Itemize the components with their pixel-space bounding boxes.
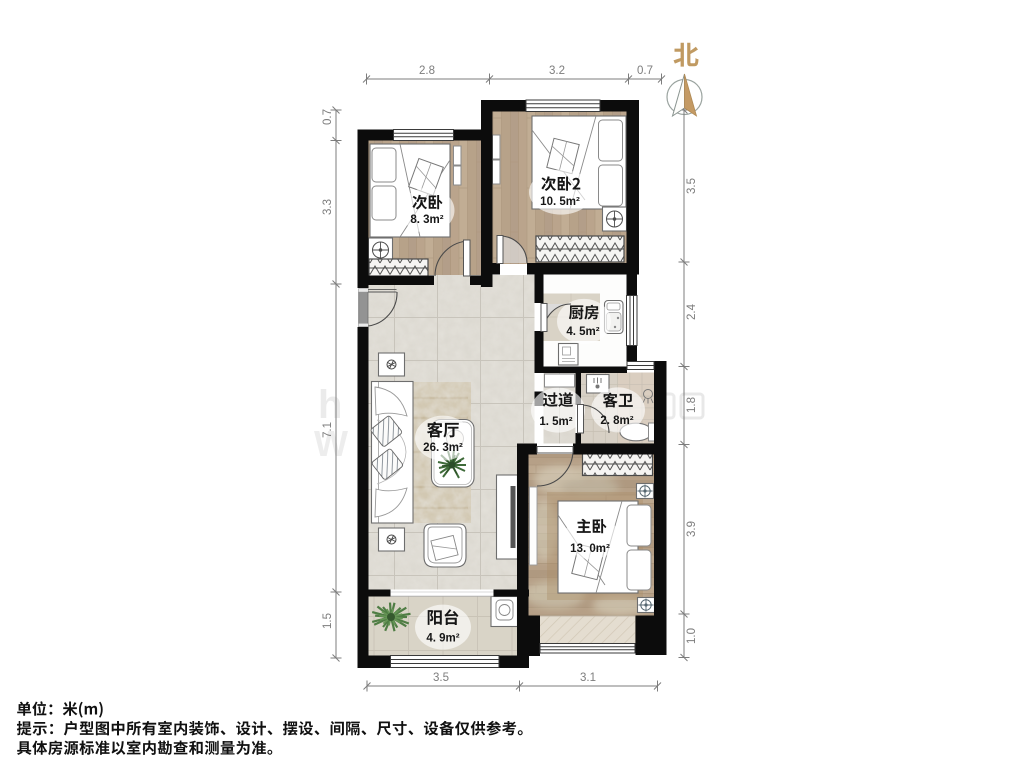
svg-text:3.3: 3.3 [322, 199, 334, 215]
svg-text:1.5: 1.5 [322, 613, 334, 629]
svg-text:2.8: 2.8 [419, 65, 435, 77]
svg-text:4. 9m²: 4. 9m² [426, 633, 459, 645]
svg-text:3.2: 3.2 [549, 65, 565, 77]
svg-text:1.8: 1.8 [686, 397, 698, 413]
svg-text:3.5: 3.5 [686, 178, 698, 194]
svg-text:3.9: 3.9 [686, 521, 698, 537]
svg-text:2. 8m²: 2. 8m² [600, 415, 633, 427]
svg-text:0.7: 0.7 [637, 65, 653, 77]
svg-text:10. 5m²: 10. 5m² [540, 196, 580, 208]
svg-text:26. 3m²: 26. 3m² [423, 442, 463, 454]
svg-text:2.4: 2.4 [686, 303, 698, 320]
svg-text:13. 0m²: 13. 0m² [570, 543, 610, 555]
svg-text:1.0: 1.0 [686, 628, 698, 644]
svg-text:3.5: 3.5 [433, 672, 449, 684]
svg-text:3.1: 3.1 [580, 672, 596, 684]
svg-text:4. 5m²: 4. 5m² [566, 326, 599, 338]
svg-text:0.7: 0.7 [322, 109, 334, 125]
svg-text:1. 5m²: 1. 5m² [539, 416, 572, 428]
svg-text:h: h [318, 383, 342, 427]
svg-text:8. 3m²: 8. 3m² [410, 214, 443, 226]
svg-text:7.1: 7.1 [322, 422, 334, 438]
